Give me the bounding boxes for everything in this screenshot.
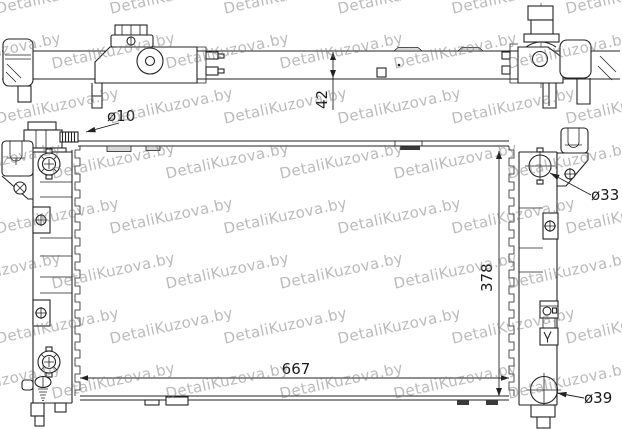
mount-bracket-top-right: [557, 128, 588, 186]
callout-filler-diameter: ø10: [85, 107, 135, 135]
callout-outlet-diameter: ø39: [557, 389, 613, 407]
left-tank: [2, 122, 78, 426]
outlet-port-left-bottom: [38, 347, 60, 377]
left-bracket-top-view: [3, 25, 224, 108]
dim-height-label: 378: [478, 263, 496, 292]
inlet-port-right-top: [525, 148, 555, 184]
bracket-left-mid-2: [33, 300, 50, 326]
dia-inlet-label: ø33: [591, 186, 619, 204]
mount-bracket-top-left: [2, 141, 33, 199]
filler-nipple: [60, 132, 78, 142]
dimension-core-height: 378: [478, 151, 502, 396]
callout-inlet-diameter: ø33: [549, 171, 620, 204]
bracket-right-mid: [543, 213, 558, 239]
dim-depth-label: 42: [313, 90, 331, 109]
front-view: 378 667 ø10 ø33 ø39: [2, 107, 619, 428]
oil-cooler-fittings: [540, 301, 558, 345]
dia-filler-label: ø10: [107, 107, 135, 125]
bracket-left-mid-1: [33, 207, 50, 233]
inlet-port-left-top: [38, 149, 60, 179]
dimension-core-depth: 42: [313, 52, 336, 110]
outlet-port-right-bottom: [527, 373, 561, 407]
dimension-core-width: 667: [80, 360, 509, 381]
radiator-drawing-page: 42: [0, 0, 622, 429]
dim-width-label: 667: [282, 360, 311, 378]
radiator-technical-drawing: 42: [0, 0, 622, 429]
dia-outlet-label: ø39: [584, 389, 612, 407]
right-tank: [519, 128, 588, 428]
right-bracket-top-view: [502, 3, 616, 108]
top-view: 42: [2, 3, 620, 110]
drain-plug: [35, 377, 51, 401]
